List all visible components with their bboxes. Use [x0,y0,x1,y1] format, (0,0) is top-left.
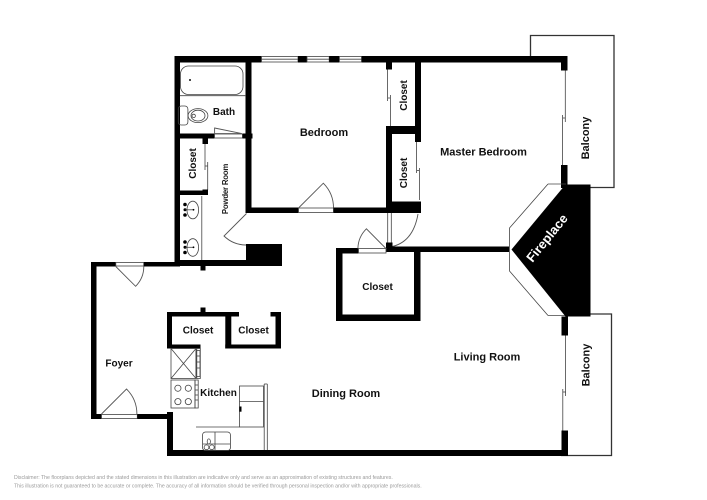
svg-text:Closet: Closet [399,80,410,111]
svg-text:Powder Room: Powder Room [221,164,230,214]
svg-text:Closet: Closet [238,326,269,337]
svg-text:Balcony: Balcony [580,116,592,160]
svg-text:Closet: Closet [183,326,214,337]
svg-text:Closet: Closet [188,148,199,179]
svg-text:Bedroom: Bedroom [300,127,349,139]
svg-text:This illustration is not guara: This illustration is not guaranteed to b… [14,484,422,490]
svg-text:Dining Room: Dining Room [312,388,381,400]
svg-text:Balcony: Balcony [581,343,593,387]
svg-text:Living Room: Living Room [454,352,521,364]
svg-text:Closet: Closet [399,157,410,188]
svg-text:Closet: Closet [362,282,393,293]
svg-text:Bath: Bath [213,107,235,118]
svg-text:Master Bedroom: Master Bedroom [440,147,527,159]
svg-text:Foyer: Foyer [105,359,132,370]
svg-text:Disclaimer: The floorplans dep: Disclaimer: The floorplans depicted and … [14,475,393,481]
svg-text:Kitchen: Kitchen [200,388,237,399]
